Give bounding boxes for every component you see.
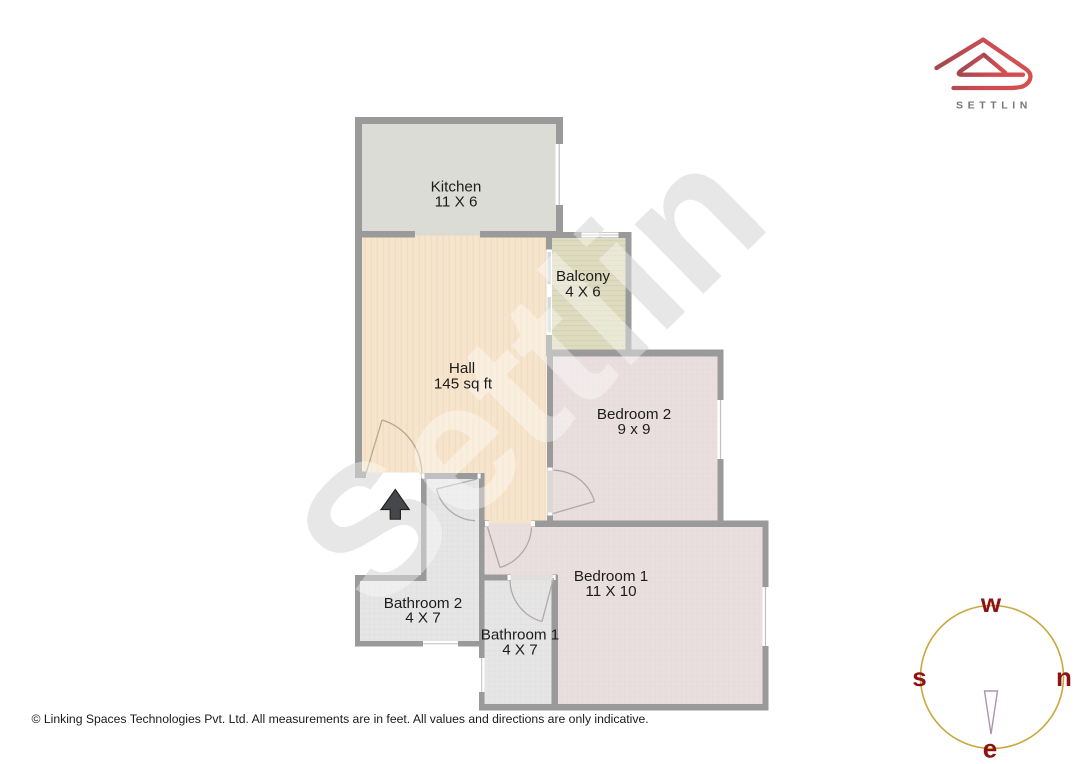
svg-text:s: s	[912, 662, 926, 692]
svg-text:SETTLIN: SETTLIN	[956, 100, 1032, 112]
svg-text:9 x 9: 9 x 9	[618, 421, 651, 438]
svg-text:145 sq ft: 145 sq ft	[434, 376, 493, 393]
svg-text:w: w	[980, 588, 1002, 618]
svg-text:4 X 7: 4 X 7	[405, 610, 440, 627]
svg-text:4 X 7: 4 X 7	[502, 642, 537, 659]
svg-text:n: n	[1056, 662, 1072, 692]
svg-text:4 X 6: 4 X 6	[565, 284, 600, 301]
svg-text:11 X 10: 11 X 10	[585, 583, 636, 600]
svg-text:Hall: Hall	[449, 360, 475, 377]
svg-text:11 X 6: 11 X 6	[435, 194, 478, 211]
svg-text:Balcony: Balcony	[556, 268, 610, 285]
svg-text:e: e	[983, 734, 997, 764]
svg-text:© Linking Spaces Technologies: © Linking Spaces Technologies Pvt. Ltd. …	[32, 712, 649, 726]
